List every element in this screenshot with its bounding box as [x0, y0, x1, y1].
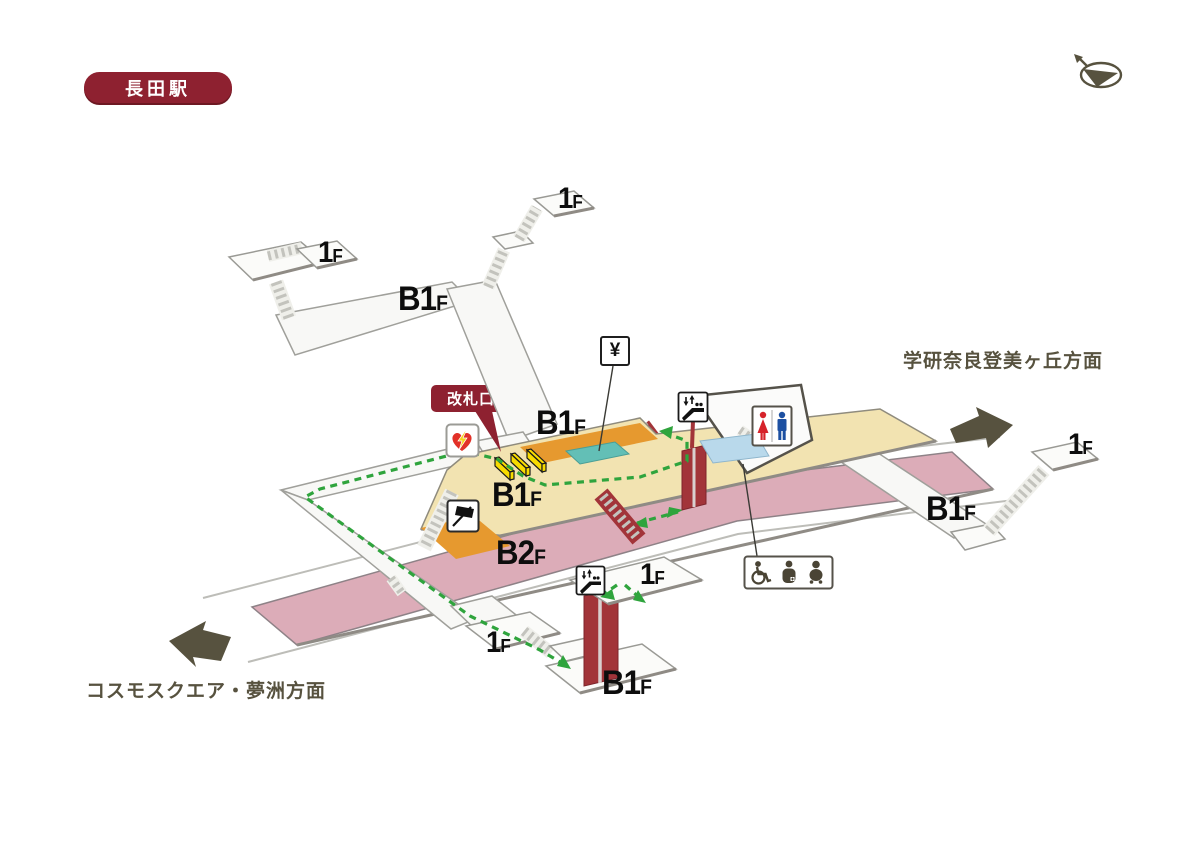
- floor-label-b2f: B2F: [496, 536, 545, 570]
- station-diagram: [0, 0, 1200, 848]
- floor-label-b1f-right: B1F: [926, 492, 975, 526]
- arrow-left-icon: [169, 621, 231, 667]
- arrow-right-icon: [950, 407, 1013, 448]
- floor-label-1f-topleft: 1F: [318, 238, 342, 268]
- aed-icon: [447, 425, 479, 457]
- station-office-flag-icon: [448, 501, 479, 532]
- station-map-page: { "station": {"name": "長田駅"}, "badges": …: [0, 0, 1200, 848]
- floor-label-1f-bottom-lower: 1F: [486, 628, 510, 658]
- escalator-sign-bottom: [577, 567, 605, 599]
- accessible-toilet-sign: [745, 557, 833, 589]
- floor-label-b1f-mid: B1F: [536, 406, 585, 440]
- floor-label-b1f-bottom: B1F: [602, 666, 651, 700]
- north-compass-icon: [1074, 54, 1121, 87]
- floor-label-b1f-concourse: B1F: [492, 478, 541, 512]
- toilet-sign: [753, 407, 792, 446]
- floor-label-b1f-top: B1F: [398, 282, 447, 316]
- floor-label-1f-topcenter: 1F: [558, 184, 582, 214]
- floor-label-1f-bottom-upper: 1F: [640, 560, 664, 590]
- floor-label-1f-right: 1F: [1068, 430, 1092, 460]
